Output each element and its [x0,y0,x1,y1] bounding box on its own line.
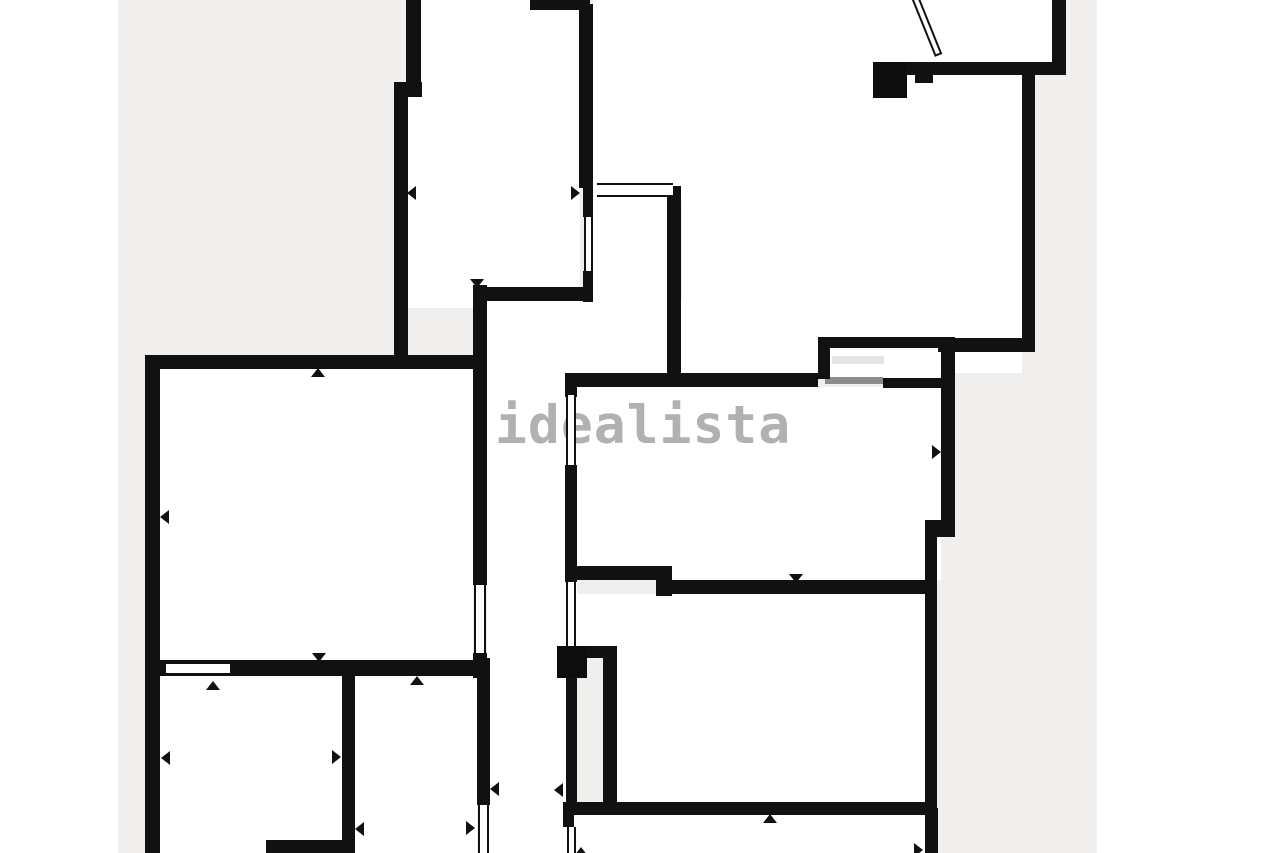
wall-segment [565,373,818,387]
door-arrow [490,782,499,796]
room-area [682,70,1022,373]
wall-segment [1022,64,1035,345]
door-arrow [574,847,588,853]
door-arrow [470,279,484,288]
wall-segment [473,287,589,301]
wall-segment [406,0,421,90]
watermark: idealista [495,399,791,452]
door-arrow [355,822,364,836]
wall-segment [1052,0,1066,68]
room-area [565,301,682,373]
room-area [355,676,477,853]
wall-segment [928,62,1066,75]
floor-plan-canvas: idealista [0,0,1280,853]
wall-segment [563,802,937,815]
wall-segment [266,840,355,853]
wall-segment [667,186,681,380]
balcony-glass-line [832,356,884,364]
wall-segment [565,373,577,397]
wall-segment [818,337,830,379]
door-arrow [332,750,341,764]
window-vertical [566,395,576,465]
room-area [593,197,668,303]
wall-segment [925,520,955,537]
wall-segment [587,646,607,658]
room-area [577,815,925,853]
room-area [487,285,577,853]
window-vertical [566,582,576,646]
wall-segment [566,678,577,804]
wall-segment [925,537,937,808]
wall-segment [145,355,487,369]
room-area [577,594,925,802]
wall-segment [565,465,577,582]
window-vertical [584,217,593,271]
door-arrow [311,368,325,377]
window-vertical [474,585,486,653]
door-arrow [312,653,326,662]
wall-segment [342,676,355,844]
door-arrow [466,821,475,835]
wall-segment [883,378,941,388]
room-area [408,0,580,290]
wall-segment [570,566,670,580]
room-area [159,369,473,660]
window-horizontal [597,183,673,197]
window-vertical [478,805,489,853]
wall-segment [473,285,487,585]
door-arrow [407,186,416,200]
light-well [573,658,604,802]
door-arrow [475,510,484,524]
wall-segment [579,4,593,188]
room-area [593,0,1052,70]
solid-column [873,62,907,98]
room-area [408,288,474,308]
wall-segment [941,337,955,537]
door-arrow [554,783,563,797]
door-arrow [914,843,923,853]
wall-segment [583,186,593,217]
door-arrow [571,186,580,200]
wall-segment [603,646,617,804]
wall-segment [394,84,408,358]
room-area [159,676,342,853]
solid-column [557,646,587,678]
wall-segment [145,355,160,853]
door-arrow [410,676,424,685]
door-arrow [161,751,170,765]
window-horizontal [166,662,230,675]
door-arrow [206,681,220,690]
wall-segment [477,658,490,805]
wall-segment [563,815,574,827]
door-arrow [932,445,941,459]
balcony-edge-line [825,377,883,384]
door-arrow [763,814,777,823]
door-arrow [160,510,169,524]
door-arrow [789,574,803,583]
room-area [593,70,682,201]
wall-segment [818,337,952,348]
